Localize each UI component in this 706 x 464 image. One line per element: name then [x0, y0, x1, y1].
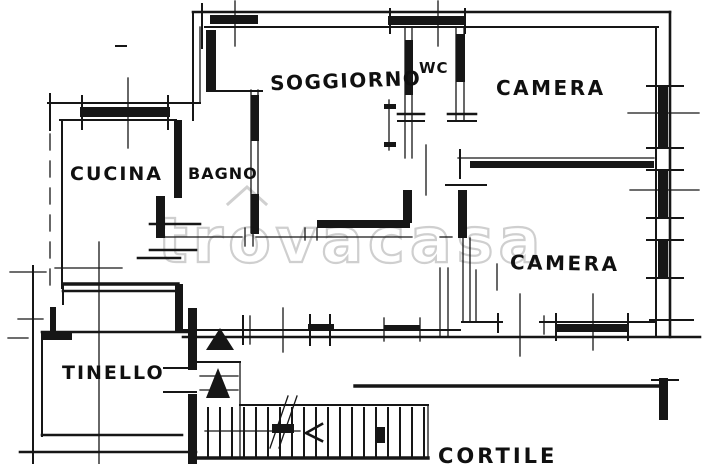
label-cucina: CUCINA [70, 163, 163, 185]
window-right-2 [658, 170, 668, 218]
window-bedroom [556, 324, 628, 332]
bedroom-south-wall [462, 294, 656, 356]
top-exterior-wall [193, 1, 670, 48]
stair-direction-arrow-icon [306, 424, 322, 441]
trovacasa-watermark: trovacasa [158, 187, 545, 277]
window-right-1 [658, 86, 668, 148]
wc-walls [384, 27, 476, 195]
window-top-left [210, 15, 258, 24]
label-bagno: BAGNO [188, 164, 258, 183]
floor-plan-page: trovacasa [0, 0, 706, 464]
stair-up-arrow-icon [206, 368, 230, 398]
label-tinello: TINELLO [62, 362, 165, 384]
watermark-text: trovacasa [158, 204, 545, 277]
label-wc: WC [419, 59, 449, 77]
label-soggiorno: SOGGIORNO [270, 66, 422, 95]
door-swing-triangle [206, 328, 234, 350]
right-exterior-wall [628, 12, 699, 337]
staircase [196, 362, 428, 458]
hallway-south-wall [183, 268, 700, 420]
label-camera-bottom: CAMERA [510, 250, 620, 276]
label-cortile: CORTILE [438, 444, 557, 464]
label-camera-top: CAMERA [496, 76, 606, 100]
watermark-house-roof-icon [228, 187, 266, 204]
window-top-right [388, 16, 466, 25]
floor-plan-drawing: trovacasa [0, 0, 706, 464]
entry-step [50, 307, 56, 333]
window-kitchen [80, 107, 170, 117]
window-right-3 [658, 240, 668, 278]
